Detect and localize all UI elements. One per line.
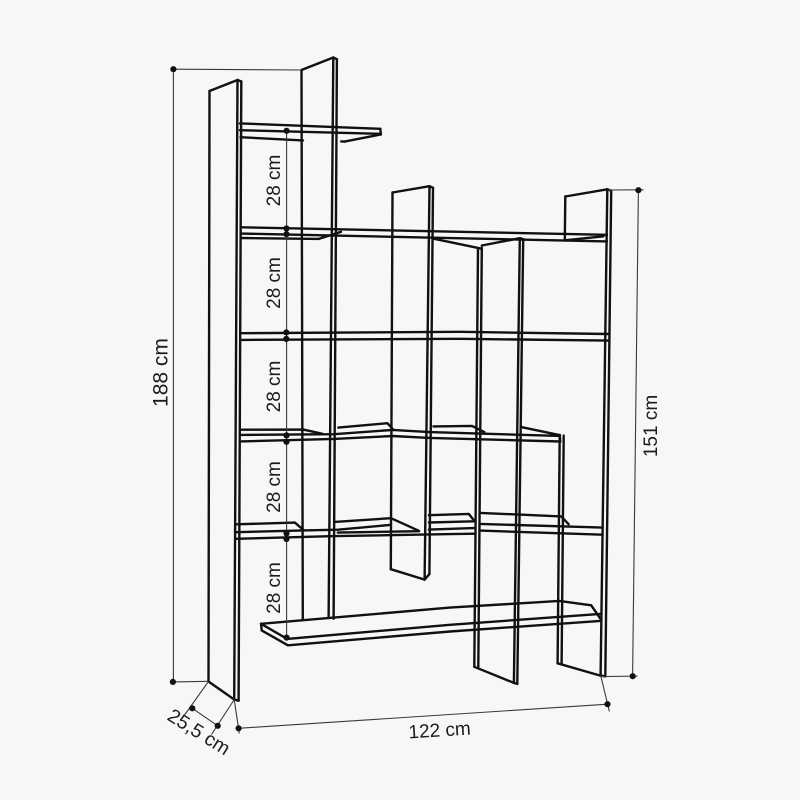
svg-text:28 cm: 28 cm bbox=[264, 461, 285, 513]
svg-text:122 cm: 122 cm bbox=[408, 719, 472, 744]
svg-text:151 cm: 151 cm bbox=[641, 395, 662, 457]
svg-text:28 cm: 28 cm bbox=[264, 562, 285, 614]
svg-text:28 cm: 28 cm bbox=[264, 257, 285, 309]
svg-text:28 cm: 28 cm bbox=[264, 155, 285, 207]
svg-text:188 cm: 188 cm bbox=[150, 338, 173, 407]
svg-text:28 cm: 28 cm bbox=[264, 361, 285, 413]
